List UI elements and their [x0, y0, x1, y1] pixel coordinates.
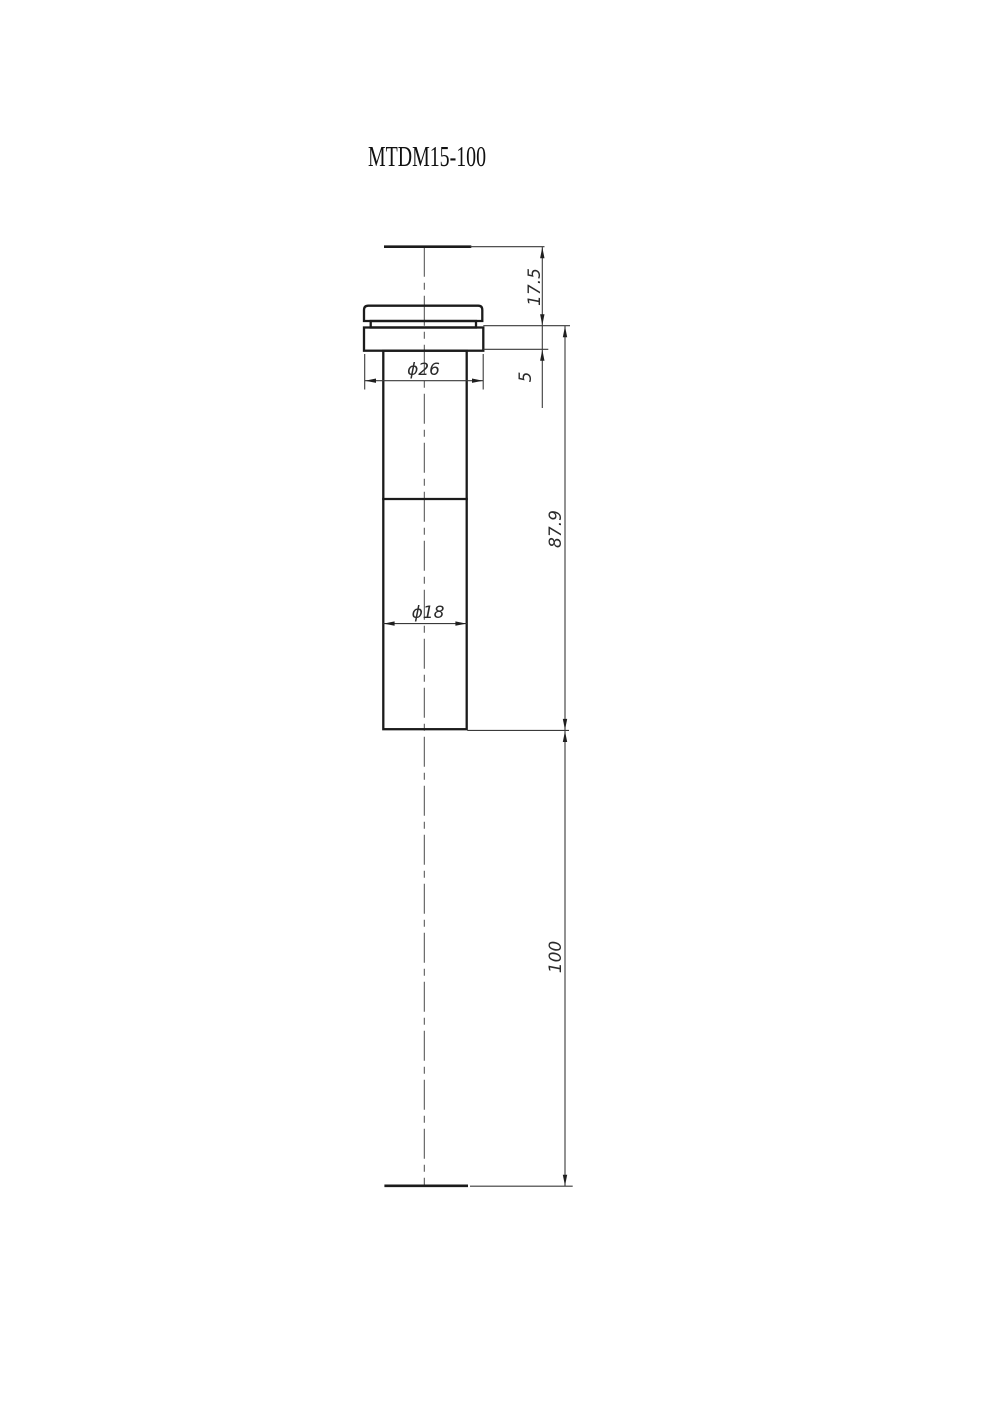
- arrowhead-down: [563, 719, 567, 730]
- dimension-label: 100: [546, 941, 566, 973]
- dimension-dia-18: ϕ18: [383, 603, 466, 626]
- cap-outline: [364, 306, 482, 321]
- arrowhead-up: [540, 350, 544, 361]
- dimension-5: 5: [516, 350, 545, 383]
- dimension-87-9: 87.9: [546, 326, 567, 730]
- dimension-label: ϕ26: [407, 360, 440, 380]
- arrowhead-up: [563, 731, 567, 742]
- dimension-label: ϕ18: [412, 603, 445, 623]
- arrowhead-right: [472, 379, 483, 383]
- arrowhead-left: [365, 379, 376, 383]
- drawing-title: MTDM15-100: [368, 142, 486, 173]
- dimension-label: 87.9: [546, 510, 566, 548]
- dimension-label: 5: [516, 372, 536, 383]
- arrowhead-up: [563, 326, 567, 337]
- arrowhead-down: [540, 314, 544, 325]
- arrowhead-down: [563, 1175, 567, 1186]
- tube-outline: [383, 351, 466, 730]
- drawing-sheet: MTDM15-100 17.5 5: [0, 0, 992, 1403]
- arrowhead-right: [455, 621, 466, 625]
- technical-drawing: MTDM15-100 17.5 5: [0, 0, 992, 1403]
- arrowhead-up: [540, 247, 544, 258]
- dimension-label: 17.5: [525, 268, 545, 306]
- dimension-17-5: 17.5: [525, 247, 545, 408]
- flange-outline: [364, 328, 483, 351]
- dimension-100: 100: [546, 731, 567, 1186]
- arrowhead-left: [384, 621, 395, 625]
- part-outline: [364, 247, 573, 1186]
